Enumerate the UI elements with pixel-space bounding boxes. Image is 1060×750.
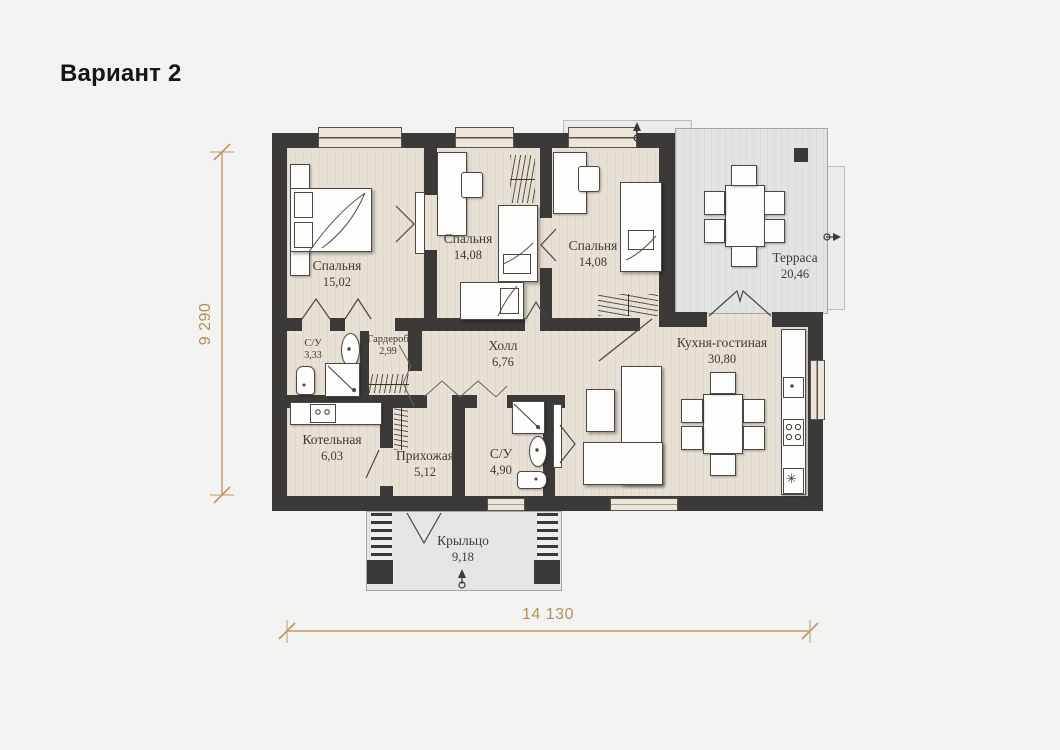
toilet	[517, 471, 547, 489]
wall-corridor-a	[287, 318, 302, 331]
cooktop-star-icon: ✳	[786, 472, 797, 487]
wardrobe-hatch	[367, 374, 409, 393]
stove	[783, 419, 804, 446]
dining-table	[725, 185, 765, 247]
wall-corridor-e	[552, 318, 640, 331]
dimension-height-label: 9 290	[197, 303, 215, 346]
nightstand	[290, 164, 310, 190]
terrace-right-strip	[826, 166, 845, 310]
toilet	[296, 366, 315, 395]
chair	[681, 399, 703, 423]
room-label-porch: Крыльцо 9,18	[437, 533, 489, 566]
window-kitchen-south	[610, 498, 678, 511]
wall-corridor-b	[330, 318, 345, 331]
wall-left	[272, 133, 287, 511]
chair	[731, 165, 757, 186]
room-label-bath2: С/У 4,90	[490, 446, 512, 479]
pillow	[628, 230, 654, 250]
wall-bed1-2-lower	[424, 250, 437, 331]
porch-steps-right	[537, 513, 558, 562]
single-bed	[620, 182, 662, 272]
chair	[731, 246, 757, 267]
chair	[681, 426, 703, 450]
room-label-entry: Прихожая 5,12	[396, 448, 454, 481]
pillow	[500, 288, 519, 314]
wall-bed2-3-lower	[540, 268, 552, 331]
chair	[743, 399, 765, 423]
chair	[764, 191, 785, 215]
chair	[578, 166, 600, 192]
pillow	[294, 192, 313, 218]
window-bedroom3	[568, 127, 637, 148]
nightstand	[290, 250, 310, 276]
wall-wardrobe-right	[408, 331, 422, 371]
armchair	[586, 389, 615, 432]
window-bath2	[487, 498, 525, 511]
sink	[529, 436, 547, 467]
room-label-bedroom1: Спальня 15,02	[313, 258, 362, 291]
page-title: Вариант 2	[60, 60, 182, 88]
window-kitchen-east	[810, 360, 825, 420]
room-label-kitchen: Кухня-гостиная 30,80	[677, 335, 767, 368]
wardrobe-hatch	[510, 155, 535, 203]
chair	[710, 454, 736, 476]
dimension-width-label: 14 130	[522, 606, 574, 624]
room-label-boiler: Котельная 6,03	[302, 432, 361, 465]
coat-rack-hatch	[394, 404, 408, 450]
room-label-bedroom3: Спальня 14,08	[569, 238, 618, 271]
room-label-bath1: С/У 3,33	[304, 337, 322, 363]
wall-bed2-3-upper	[540, 148, 552, 218]
wall-boiler-right-b	[380, 486, 393, 496]
room-label-wardrobe: Гардероб 2,99	[367, 333, 408, 359]
chair	[743, 426, 765, 450]
room-label-terrace: Терраса 20,46	[772, 250, 817, 283]
chair	[710, 372, 736, 394]
wall-bath2-top-a	[452, 395, 477, 408]
wall-kitchen-top-a	[675, 312, 707, 327]
window-bedroom1	[318, 127, 402, 148]
chair	[704, 219, 725, 243]
pillow	[503, 254, 531, 274]
dining-table	[703, 394, 743, 454]
chair	[461, 172, 483, 198]
room-label-hall: Холл 6,76	[489, 338, 518, 371]
chair	[704, 191, 725, 215]
porch-steps-left	[371, 513, 392, 562]
sofa	[583, 442, 663, 485]
chair	[764, 219, 785, 243]
wall-kitchen-top-b	[772, 312, 823, 327]
door-leaf-bedroom	[415, 192, 425, 254]
porch-column-left	[367, 560, 393, 584]
pillow	[294, 222, 313, 248]
window-bedroom2	[455, 127, 514, 148]
floor-plan-page: Вариант 2	[0, 0, 1060, 750]
boiler-counter	[290, 402, 382, 425]
shower	[512, 401, 545, 434]
sink	[341, 333, 360, 367]
wall-bottom	[272, 496, 823, 511]
wardrobe-hatch	[598, 294, 658, 316]
terrace-column	[794, 148, 808, 162]
porch-column-right	[534, 560, 560, 584]
shower	[325, 363, 360, 397]
boiler-unit	[310, 404, 336, 423]
room-label-bedroom2: Спальня 14,08	[444, 231, 493, 264]
door-leaf-bath2	[553, 404, 562, 468]
wall-corridor-c	[395, 318, 424, 331]
wall-bed1-2-upper	[424, 148, 437, 195]
kitchen-sink	[783, 377, 804, 398]
